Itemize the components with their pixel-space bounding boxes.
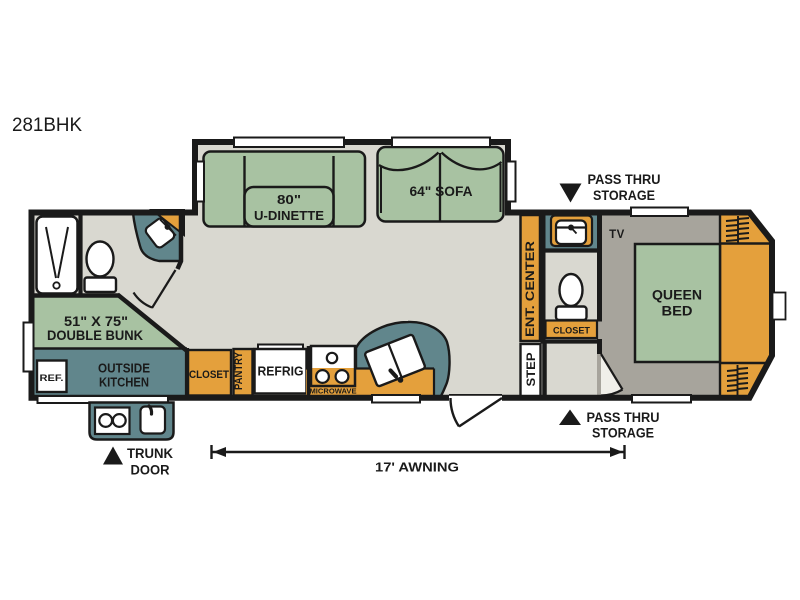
svg-text:BED: BED bbox=[662, 304, 693, 319]
svg-text:STORAGE: STORAGE bbox=[592, 426, 654, 441]
svg-text:PANTRY: PANTRY bbox=[233, 351, 245, 390]
svg-text:OUTSIDE: OUTSIDE bbox=[98, 362, 150, 376]
svg-text:REFRIG: REFRIG bbox=[258, 365, 304, 379]
svg-text:PASS THRU: PASS THRU bbox=[587, 410, 660, 425]
svg-text:ENT. CENTER: ENT. CENTER bbox=[523, 241, 537, 337]
svg-text:STEP: STEP bbox=[524, 353, 538, 387]
svg-text:DOOR: DOOR bbox=[131, 463, 170, 478]
svg-text:MICROWAVE: MICROWAVE bbox=[310, 387, 357, 396]
svg-text:CLOSET: CLOSET bbox=[189, 369, 229, 381]
svg-text:TRUNK: TRUNK bbox=[127, 446, 173, 461]
svg-text:REF.: REF. bbox=[40, 373, 64, 384]
svg-text:TV: TV bbox=[609, 229, 625, 241]
svg-text:281BHK: 281BHK bbox=[12, 114, 82, 136]
svg-text:17' AWNING: 17' AWNING bbox=[375, 461, 459, 475]
svg-text:64" SOFA: 64" SOFA bbox=[410, 184, 473, 199]
svg-text:80": 80" bbox=[277, 192, 301, 207]
svg-text:CLOSET: CLOSET bbox=[553, 326, 590, 336]
svg-text:STORAGE: STORAGE bbox=[593, 188, 655, 203]
svg-text:DOUBLE BUNK: DOUBLE BUNK bbox=[47, 328, 143, 343]
svg-text:U-DINETTE: U-DINETTE bbox=[254, 208, 324, 223]
svg-text:QUEEN: QUEEN bbox=[652, 288, 702, 303]
svg-text:KITCHEN: KITCHEN bbox=[99, 376, 149, 390]
svg-text:PASS THRU: PASS THRU bbox=[588, 172, 661, 187]
svg-text:51" X 75": 51" X 75" bbox=[64, 314, 128, 329]
